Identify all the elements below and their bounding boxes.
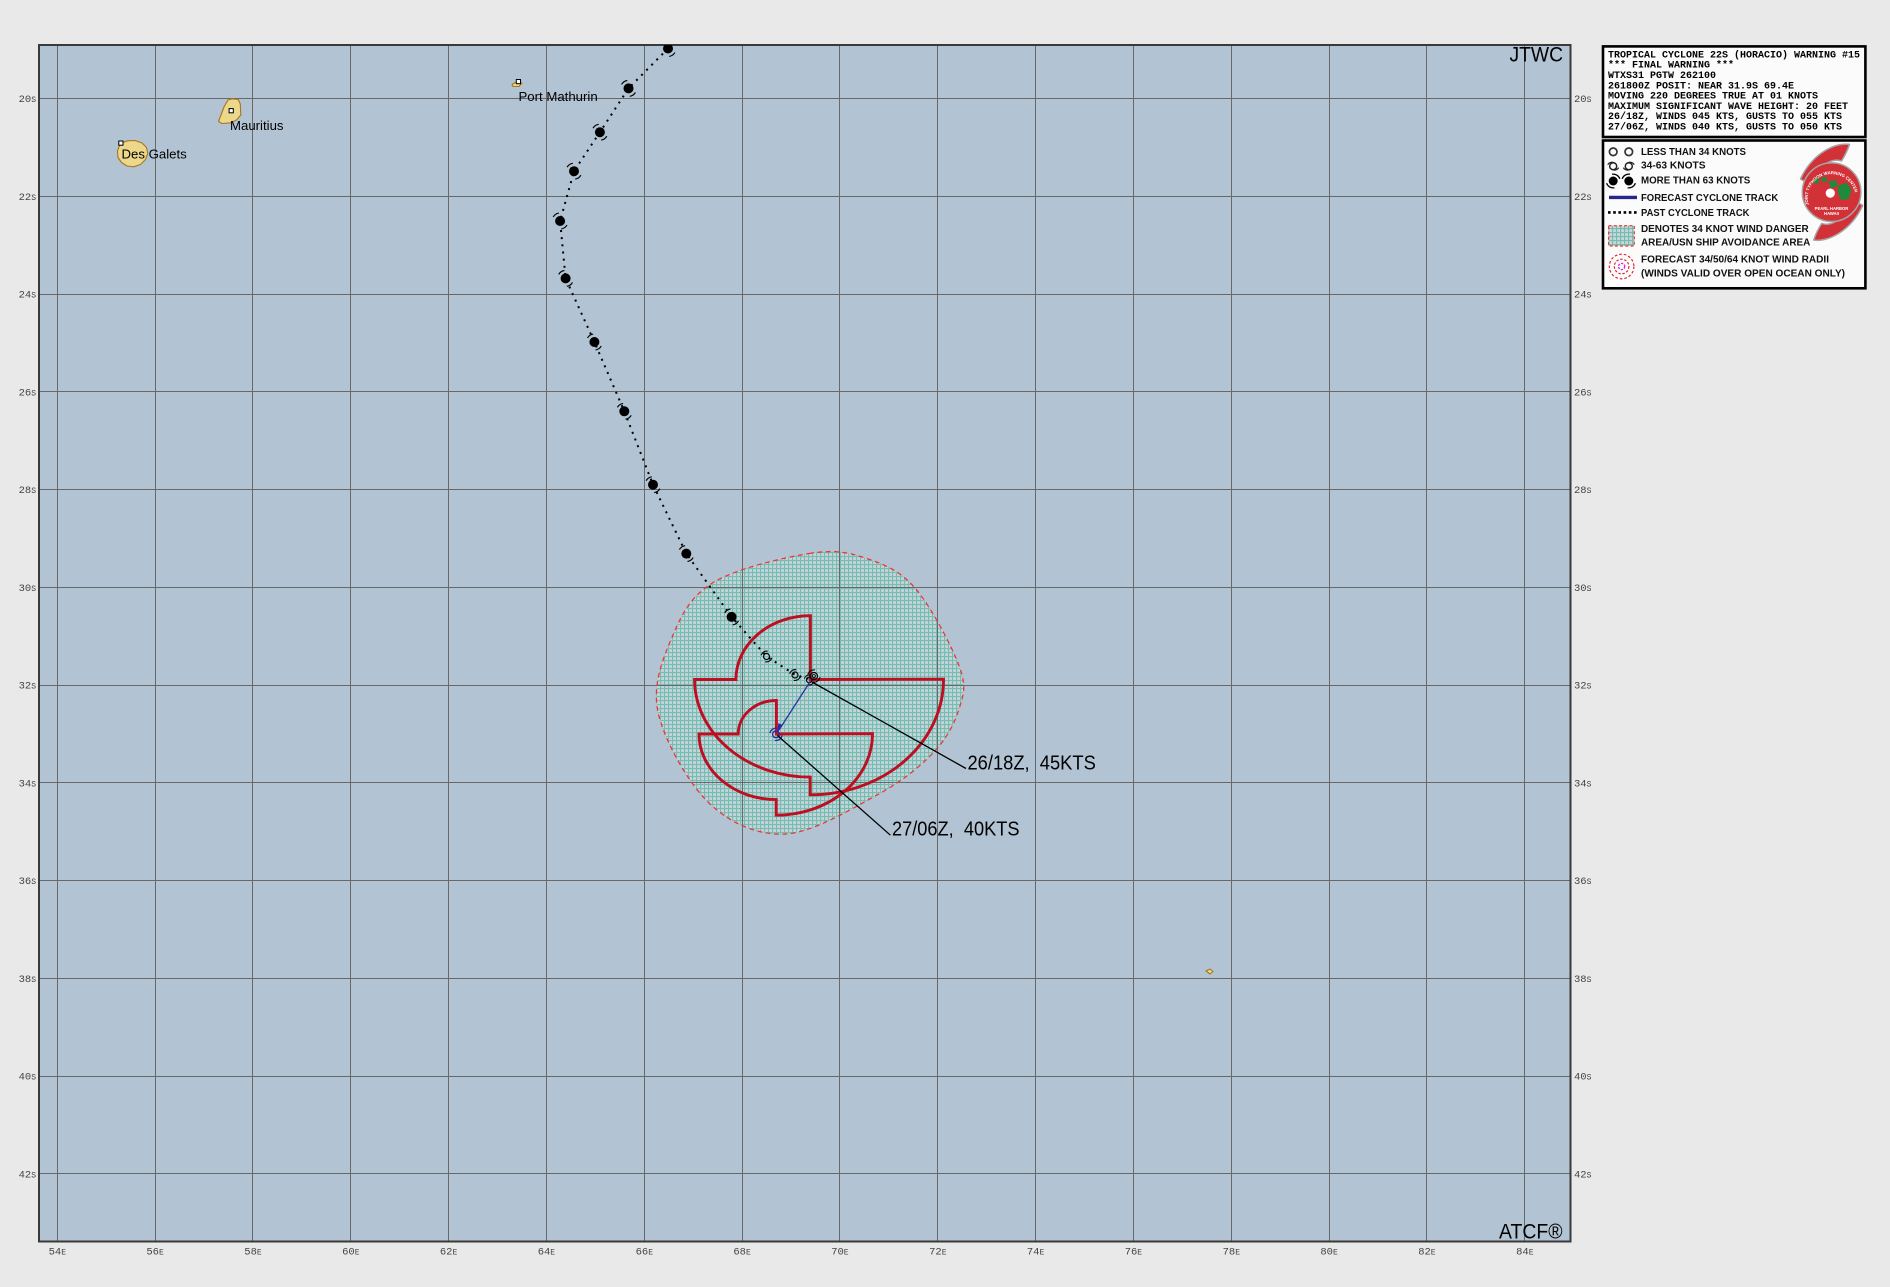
svg-text:84E: 84E (1516, 1247, 1534, 1259)
svg-text:74E: 74E (1027, 1247, 1045, 1259)
svg-text:22S: 22S (19, 192, 37, 204)
svg-text:32S: 32S (19, 681, 37, 693)
svg-text:38S: 38S (1574, 974, 1592, 986)
svg-text:28S: 28S (1574, 485, 1592, 497)
svg-text:34S: 34S (19, 778, 37, 790)
svg-text:42S: 42S (1574, 1169, 1592, 1181)
svg-text:Mauritius: Mauritius (230, 118, 284, 133)
svg-text:34S: 34S (1574, 778, 1592, 790)
svg-text:54E: 54E (49, 1247, 67, 1259)
svg-text:FORECAST 34/50/64 KNOT WIND RA: FORECAST 34/50/64 KNOT WIND RADII (1641, 255, 1829, 266)
svg-text:26S: 26S (1574, 387, 1592, 399)
svg-text:28S: 28S (19, 485, 37, 497)
svg-text:80E: 80E (1320, 1247, 1338, 1259)
svg-text:30S: 30S (1574, 583, 1592, 595)
svg-text:60E: 60E (342, 1247, 360, 1259)
svg-text:LESS THAN 34 KNOTS: LESS THAN 34 KNOTS (1641, 147, 1746, 158)
svg-text:40S: 40S (19, 1072, 37, 1084)
svg-text:20S: 20S (1574, 94, 1592, 106)
svg-text:HAWAII: HAWAII (1824, 211, 1839, 216)
svg-text:56E: 56E (146, 1247, 164, 1259)
svg-text:42S: 42S (19, 1169, 37, 1181)
svg-text:*** FINAL WARNING ***: *** FINAL WARNING *** (1608, 60, 1734, 72)
svg-text:26/18Z, 45KTS: 26/18Z, 45KTS (968, 753, 1096, 775)
svg-text:DENOTES 34 KNOT WIND DANGER: DENOTES 34 KNOT WIND DANGER (1641, 224, 1809, 235)
svg-text:66E: 66E (636, 1247, 654, 1259)
svg-text:27/06Z, WINDS 040 KTS, GUSTS T: 27/06Z, WINDS 040 KTS, GUSTS TO 050 KTS (1608, 122, 1842, 134)
svg-text:30S: 30S (19, 583, 37, 595)
svg-text:20S: 20S (19, 94, 37, 106)
svg-text:64E: 64E (538, 1247, 556, 1259)
svg-text:FORECAST CYCLONE TRACK: FORECAST CYCLONE TRACK (1641, 193, 1779, 204)
svg-text:68E: 68E (733, 1247, 751, 1259)
svg-text:MORE THAN 63 KNOTS: MORE THAN 63 KNOTS (1641, 176, 1750, 187)
svg-text:36S: 36S (1574, 876, 1592, 888)
svg-text:38S: 38S (19, 974, 37, 986)
svg-text:TROPICAL CYCLONE 22S (HORACIO): TROPICAL CYCLONE 22S (HORACIO) WARNING #… (1608, 49, 1860, 61)
svg-text:AREA/USN SHIP AVOIDANCE AREA: AREA/USN SHIP AVOIDANCE AREA (1641, 238, 1811, 249)
svg-text:Port Mathurin: Port Mathurin (519, 89, 598, 104)
svg-text:70E: 70E (831, 1247, 849, 1259)
svg-text:36S: 36S (19, 876, 37, 888)
svg-text:26/18Z, WINDS 045 KTS, GUSTS T: 26/18Z, WINDS 045 KTS, GUSTS TO 055 KTS (1608, 111, 1842, 123)
svg-text:72E: 72E (929, 1247, 947, 1259)
svg-text:34-63 KNOTS: 34-63 KNOTS (1641, 161, 1706, 172)
svg-text:58E: 58E (244, 1247, 262, 1259)
svg-text:32S: 32S (1574, 681, 1592, 693)
svg-text:PAST CYCLONE TRACK: PAST CYCLONE TRACK (1641, 208, 1750, 219)
svg-text:78E: 78E (1223, 1247, 1241, 1259)
svg-text:24S: 24S (19, 290, 37, 302)
svg-text:27/06Z, 40KTS: 27/06Z, 40KTS (892, 819, 1020, 841)
svg-text:22S: 22S (1574, 192, 1592, 204)
svg-text:82E: 82E (1418, 1247, 1436, 1259)
svg-text:76E: 76E (1125, 1247, 1143, 1259)
svg-text:26S: 26S (19, 387, 37, 399)
svg-text:ATCF®: ATCF® (1499, 1220, 1563, 1244)
svg-text:Des Galets: Des Galets (122, 147, 188, 162)
svg-text:62E: 62E (440, 1247, 458, 1259)
svg-text:(WINDS VALID OVER OPEN OCEAN O: (WINDS VALID OVER OPEN OCEAN ONLY) (1641, 269, 1845, 280)
svg-text:24S: 24S (1574, 290, 1592, 302)
svg-text:JTWC: JTWC (1510, 42, 1564, 66)
svg-text:40S: 40S (1574, 1072, 1592, 1084)
